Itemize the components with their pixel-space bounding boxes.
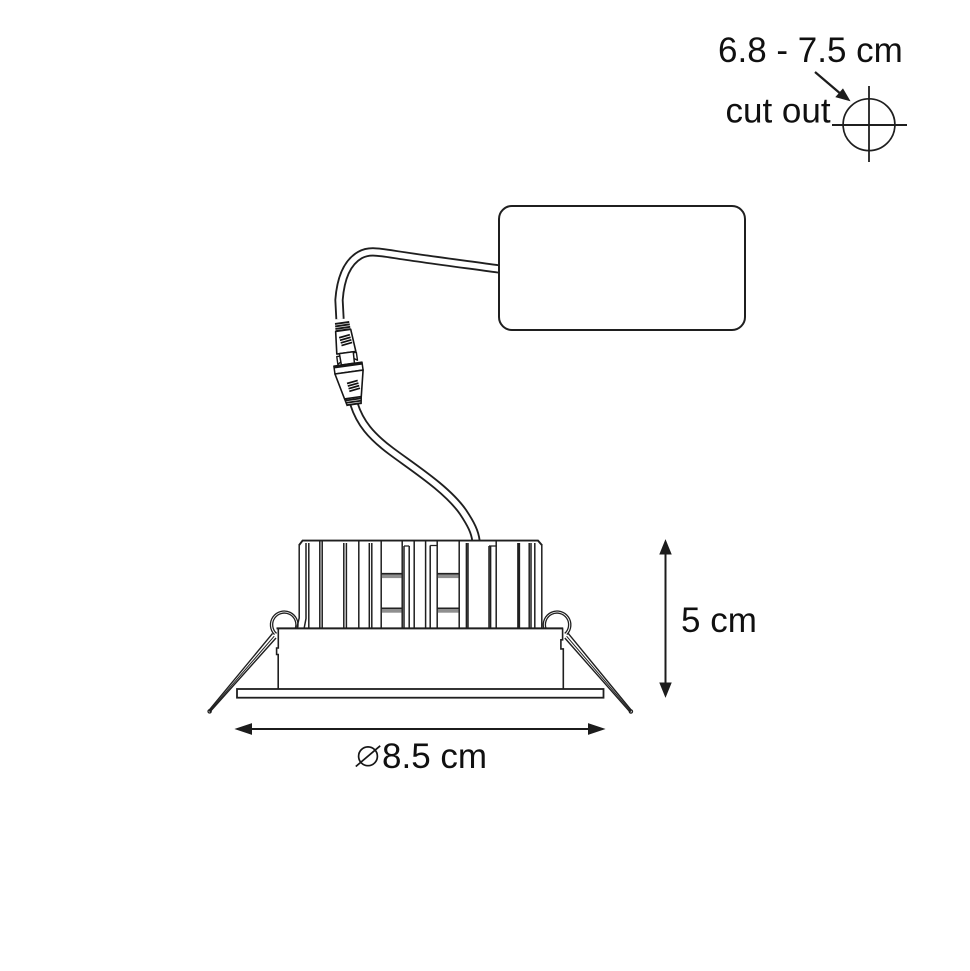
svg-text:6.8 - 7.5 cm: 6.8 - 7.5 cm <box>718 31 903 70</box>
svg-text:cut out: cut out <box>726 92 831 131</box>
svg-text:5 cm: 5 cm <box>681 601 757 640</box>
svg-text:8.5 cm: 8.5 cm <box>382 737 487 776</box>
